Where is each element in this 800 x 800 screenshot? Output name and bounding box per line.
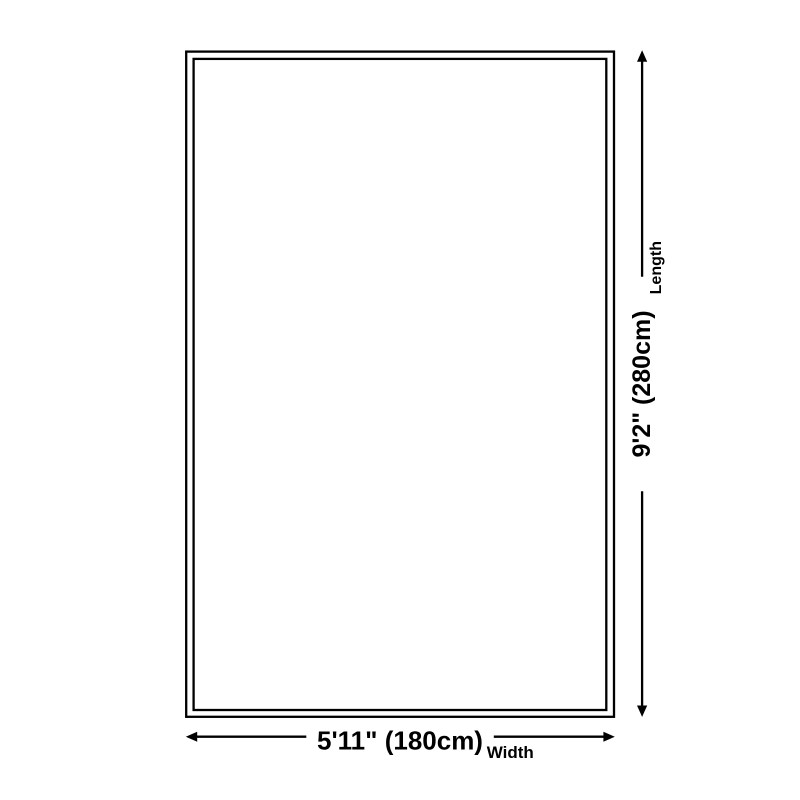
svg-text:Width: Width: [487, 743, 534, 762]
svg-text:Length: Length: [648, 241, 665, 294]
svg-text:9'2" (280cm): 9'2" (280cm): [628, 310, 656, 457]
svg-text:5'11" (180cm): 5'11" (180cm): [317, 725, 483, 755]
